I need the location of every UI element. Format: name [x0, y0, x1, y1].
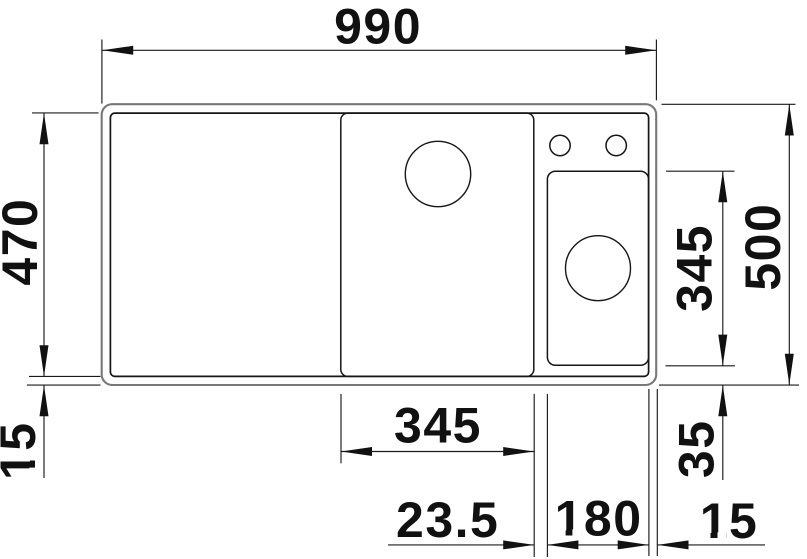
svg-text:345: 345 — [394, 397, 482, 453]
svg-text:35: 35 — [668, 419, 724, 478]
svg-text:15: 15 — [0, 421, 46, 480]
svg-text:23.5: 23.5 — [396, 492, 499, 548]
svg-text:180: 180 — [555, 490, 643, 546]
svg-text:345: 345 — [667, 224, 723, 312]
svg-text:990: 990 — [334, 0, 422, 55]
svg-text:500: 500 — [735, 203, 791, 291]
svg-text:15: 15 — [700, 493, 759, 549]
svg-text:470: 470 — [0, 198, 48, 286]
